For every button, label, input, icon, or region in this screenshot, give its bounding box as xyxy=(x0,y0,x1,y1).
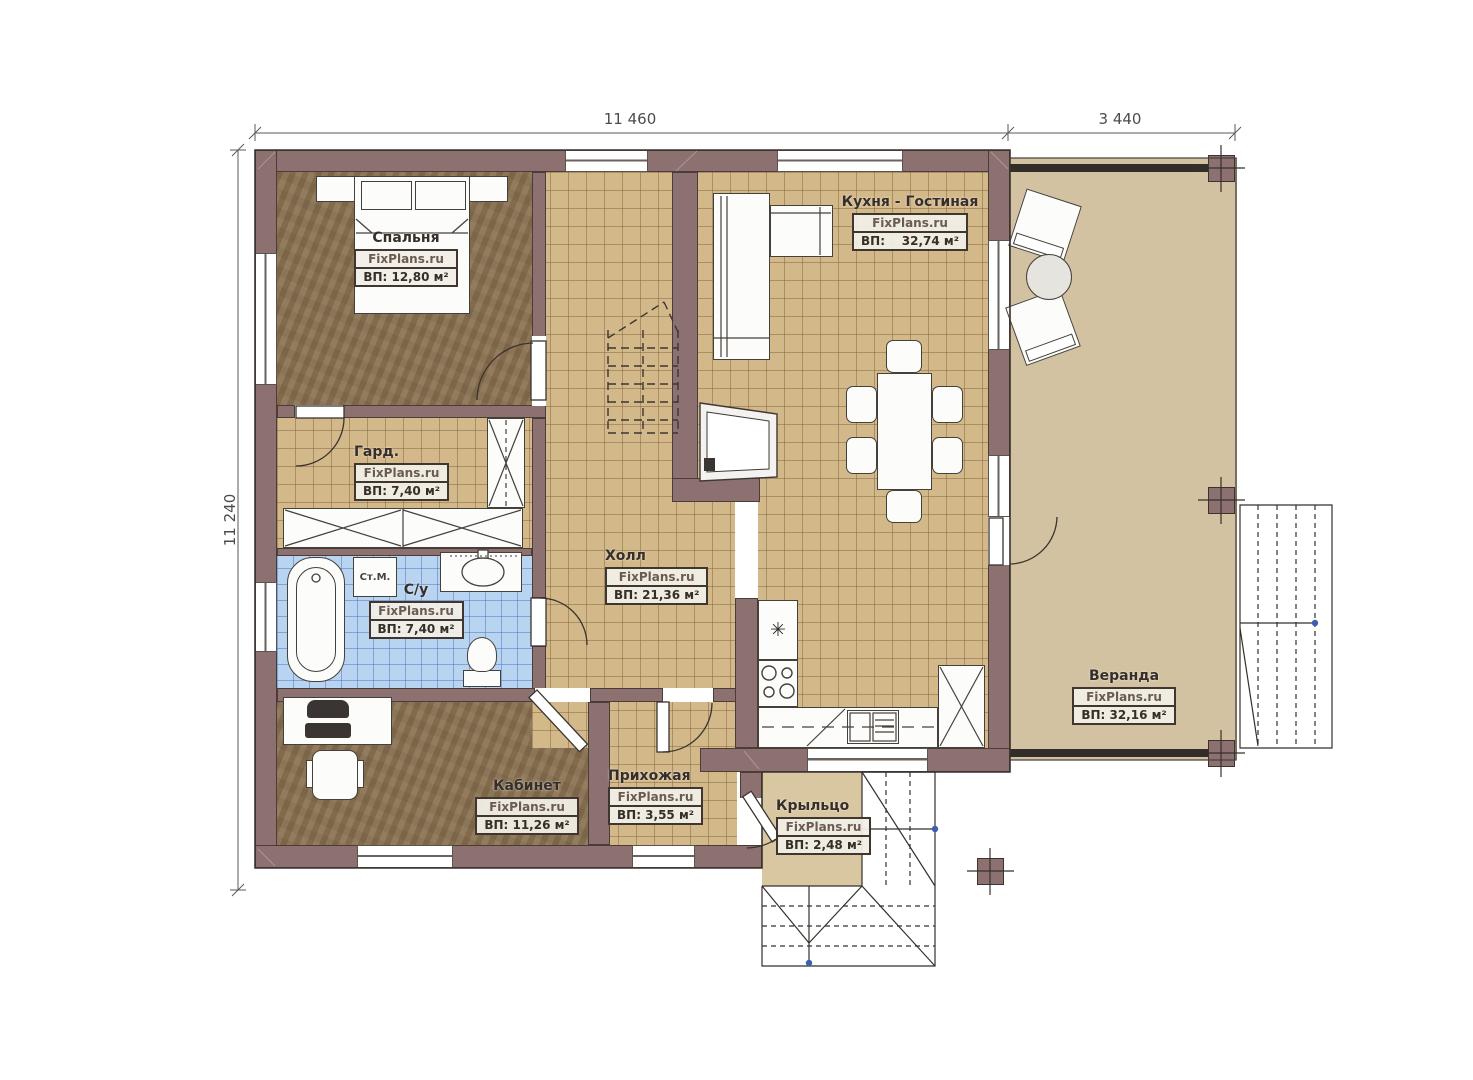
window-right-kitchen-1 xyxy=(988,240,1010,350)
dimension-width-main: 11 460 xyxy=(560,110,700,128)
veranda-table xyxy=(1026,254,1072,300)
room-name: Кабинет xyxy=(493,778,561,794)
veranda-post-bottom xyxy=(1208,740,1235,767)
office-chair xyxy=(312,750,358,800)
room-info-box: FixPlans.ru ВП: 2,48 м² xyxy=(776,817,871,855)
room-info-box: FixPlans.ru ВП: 7,40 м² xyxy=(354,463,449,501)
stove xyxy=(758,660,798,707)
window-left-bathroom xyxy=(255,582,277,652)
hall-kitchen-passage xyxy=(735,502,758,598)
wardrobe-label: Гард. FixPlans.ru ВП: 7,40 м² xyxy=(354,444,446,501)
bathroom-label: С/у FixPlans.ru ВП: 7,40 м² xyxy=(370,582,462,639)
pillow-left xyxy=(361,181,412,210)
pillow-right xyxy=(415,181,466,210)
room-area: ВП: 12,80 м² xyxy=(356,267,455,285)
wall-hall-kitchen-h xyxy=(672,478,760,502)
room-name: Гард. xyxy=(354,444,399,460)
bedroom-label: Спальня FixPlans.ru ВП: 12,80 м² xyxy=(352,230,460,287)
veranda-beam-bottom xyxy=(1010,749,1208,757)
room-name: Прихожая xyxy=(608,768,691,784)
entry-porch-door-opening xyxy=(740,798,762,845)
wall-col-right-a xyxy=(532,418,546,598)
window-bottom-kitchen xyxy=(807,748,928,772)
porch-label: Крыльцо FixPlans.ru ВП: 2,48 м² xyxy=(776,798,864,855)
room-info-box: FixPlans.ru ВП: 32,74 м² xyxy=(852,213,968,251)
window-right-kitchen-2 xyxy=(988,455,1010,517)
fridge-snowflake-icon: ✳ xyxy=(758,600,798,660)
wall-office-top-b xyxy=(590,688,663,702)
wall-hall-kitchen-v xyxy=(672,172,698,502)
bedroom-door-opening xyxy=(532,336,546,406)
laptop xyxy=(305,723,351,738)
room-area: ВП: 32,16 м² xyxy=(1074,705,1173,723)
window-bottom-office xyxy=(357,845,453,868)
room-area: ВП: 2,48 м² xyxy=(778,835,869,853)
wardrobe-cabinet-row xyxy=(283,508,523,548)
entry-hall-door-opening xyxy=(663,688,713,702)
dining-chair-bottom xyxy=(886,490,922,523)
watermark: FixPlans.ru xyxy=(371,603,462,619)
toilet-bowl xyxy=(467,637,497,672)
sofa-vertical xyxy=(713,193,770,360)
window-bottom-entry xyxy=(632,845,695,868)
veranda-post-mid xyxy=(1208,487,1235,514)
wall-col-right-b xyxy=(532,646,546,692)
room-name: Крыльцо xyxy=(776,798,849,814)
printer xyxy=(307,700,349,718)
room-area: ВП: 7,40 м² xyxy=(371,619,462,637)
dining-chair-left-2 xyxy=(846,437,877,474)
sink-dishwasher-unit xyxy=(847,710,899,744)
room-name: Веранда xyxy=(1089,668,1159,684)
toilet-tank xyxy=(463,670,501,687)
floor-plan: Ст.М. ✳ xyxy=(0,0,1473,1080)
wardrobe-cabinet-tall xyxy=(487,418,525,508)
watermark: FixPlans.ru xyxy=(854,215,966,231)
dining-chair-top xyxy=(886,340,922,373)
nightstand-right xyxy=(468,176,508,202)
wall-bedroom-right xyxy=(532,172,546,338)
room-name: Кухня - Гостиная xyxy=(842,194,979,210)
nightstand-left xyxy=(316,176,356,202)
room-info-box: FixPlans.ru ВП: 12,80 м² xyxy=(354,249,457,287)
room-name: Холл xyxy=(605,548,646,564)
watermark: FixPlans.ru xyxy=(356,465,447,481)
sofa-horizontal xyxy=(770,205,833,257)
veranda-beam-top xyxy=(1010,164,1208,172)
veranda-post-top xyxy=(1208,155,1235,182)
kitchen-label: Кухня - Гостиная FixPlans.ru ВП: 32,74 м… xyxy=(845,194,975,251)
wall-bedroom-bottom-a xyxy=(277,405,295,418)
window-left-bedroom xyxy=(255,253,277,385)
wardrobe-door-opening xyxy=(295,405,343,418)
wall-bedroom-bottom-b xyxy=(343,405,546,418)
room-info-box: FixPlans.ru ВП: 11,26 м² xyxy=(475,797,578,835)
wall-entry-side xyxy=(740,772,762,800)
dimension-height: 11 240 xyxy=(221,475,239,565)
room-name: С/у xyxy=(404,582,429,598)
watermark: FixPlans.ru xyxy=(477,799,576,815)
dining-table xyxy=(877,373,932,490)
room-info-box: FixPlans.ru ВП: 7,40 м² xyxy=(369,601,464,639)
dining-chair-right-2 xyxy=(932,437,963,474)
area-value: 32,74 м² xyxy=(902,234,959,248)
room-area: ВП: 7,40 м² xyxy=(356,481,447,499)
window-top-kitchen xyxy=(777,150,903,172)
bathroom-door-opening xyxy=(532,598,546,646)
yard-post xyxy=(977,858,1004,885)
wall-office-right xyxy=(588,702,610,845)
dining-chair-right-1 xyxy=(932,386,963,423)
watermark: FixPlans.ru xyxy=(778,819,869,835)
office-label: Кабинет FixPlans.ru ВП: 11,26 м² xyxy=(477,778,577,835)
bathtub-inner xyxy=(296,567,336,672)
entry-label: Прихожая FixPlans.ru ВП: 3,55 м² xyxy=(608,768,698,825)
watermark: FixPlans.ru xyxy=(607,569,706,585)
dining-chair-left-1 xyxy=(846,386,877,423)
watermark: FixPlans.ru xyxy=(1074,689,1173,705)
watermark: FixPlans.ru xyxy=(356,251,455,267)
hall-label: Холл FixPlans.ru ВП: 21,36 м² xyxy=(605,548,701,605)
window-top-hall xyxy=(565,150,648,172)
area-label: ВП: xyxy=(861,234,885,248)
office-chair-arm-right xyxy=(357,760,364,788)
room-info-box: FixPlans.ru ВП: 21,36 м² xyxy=(605,567,708,605)
dimension-width-veranda: 3 440 xyxy=(1055,110,1185,128)
watermark: FixPlans.ru xyxy=(610,789,701,805)
room-area: ВП: 3,55 м² xyxy=(610,805,701,823)
room-info-box: FixPlans.ru ВП: 32,16 м² xyxy=(1072,687,1175,725)
room-area: ВП: 21,36 м² xyxy=(607,585,706,603)
room-area: ВП: 11,26 м² xyxy=(477,815,576,833)
wall-fridge-side xyxy=(735,598,758,748)
room-name: Спальня xyxy=(372,230,439,246)
kitchen-cabinet-x xyxy=(938,665,985,748)
room-info-box: FixPlans.ru ВП: 3,55 м² xyxy=(608,787,703,825)
veranda-door-opening xyxy=(988,517,1010,565)
room-area: ВП: 32,74 м² xyxy=(854,231,966,249)
office-chair-arm-left xyxy=(306,760,313,788)
veranda-label: Веранда FixPlans.ru ВП: 32,16 м² xyxy=(1074,668,1174,725)
office-door-opening xyxy=(535,688,590,702)
